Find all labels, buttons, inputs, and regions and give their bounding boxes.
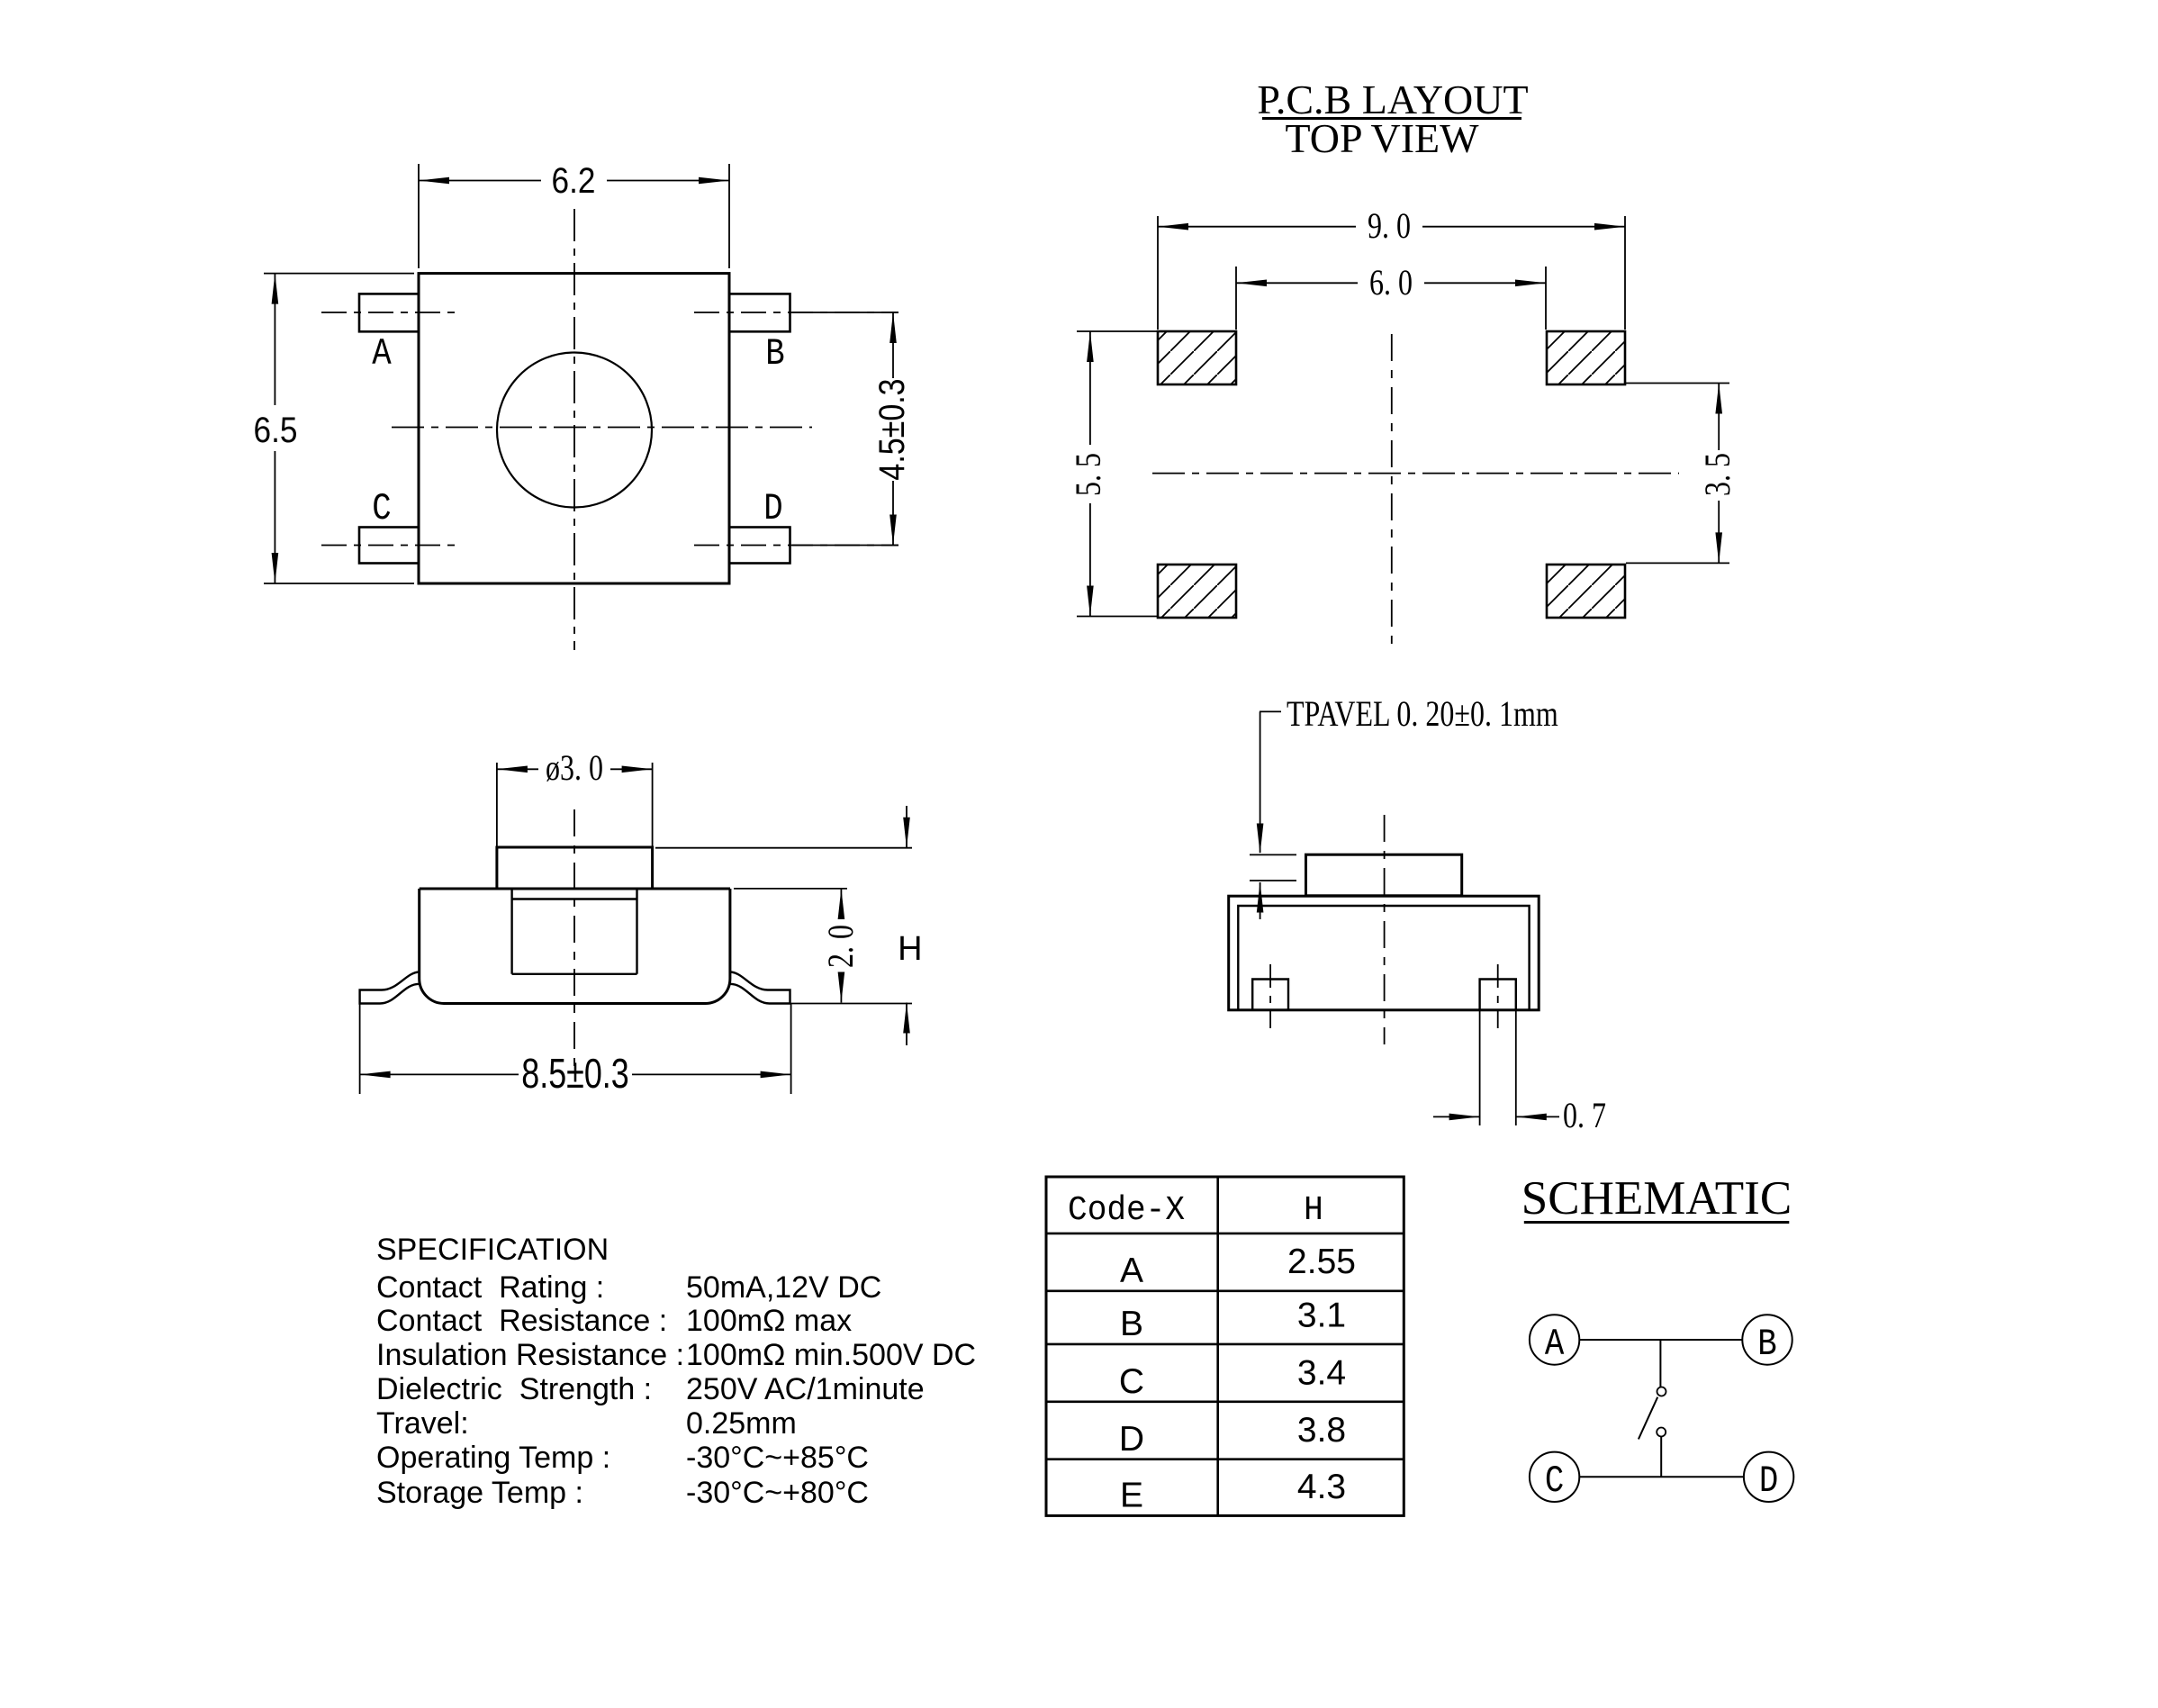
svg-text:ø3. 0: ø3. 0	[546, 748, 603, 788]
svg-text:2.55: 2.55	[1287, 1243, 1356, 1281]
svg-text:E: E	[1120, 1477, 1143, 1515]
svg-text:-30°C~+85°C: -30°C~+85°C	[686, 1441, 869, 1475]
svg-text:3. 5: 3. 5	[1698, 453, 1738, 496]
svg-text:3.1: 3.1	[1297, 1296, 1346, 1334]
svg-text:TPAVEL 0. 20±0. 1mm: TPAVEL 0. 20±0. 1mm	[1287, 694, 1558, 734]
svg-text:Travel:: Travel:	[376, 1406, 469, 1441]
svg-text:100mΩ max: 100mΩ max	[686, 1304, 852, 1338]
svg-text:D: D	[763, 488, 782, 530]
svg-text:A: A	[372, 333, 392, 375]
svg-text:8.5±0.3: 8.5±0.3	[521, 1051, 628, 1097]
svg-text:6. 0: 6. 0	[1369, 263, 1413, 303]
svg-text:A: A	[1545, 1324, 1565, 1366]
svg-text:B: B	[1757, 1324, 1776, 1366]
svg-text:50mA,12V DC: 50mA,12V DC	[686, 1270, 881, 1305]
svg-text:H: H	[898, 930, 922, 968]
svg-text:Insulation Resistance :: Insulation Resistance :	[376, 1338, 684, 1372]
svg-text:9. 0: 9. 0	[1368, 206, 1411, 246]
svg-text:D: D	[1119, 1420, 1144, 1459]
svg-text:H: H	[1304, 1191, 1323, 1230]
svg-text:3.4: 3.4	[1297, 1353, 1346, 1392]
svg-text:5. 5: 5. 5	[1069, 453, 1108, 496]
svg-text:100mΩ min.500V DC: 100mΩ min.500V DC	[686, 1338, 976, 1372]
svg-text:C: C	[1545, 1460, 1564, 1503]
svg-text:Contact Rating :: Contact Rating :	[376, 1270, 604, 1305]
svg-text:6.2: 6.2	[552, 160, 596, 201]
svg-text:Dielectric Strength :: Dielectric Strength :	[376, 1372, 652, 1406]
svg-text:B: B	[1120, 1305, 1143, 1343]
svg-text:0. 7: 0. 7	[1563, 1096, 1606, 1135]
svg-text:4.3: 4.3	[1297, 1468, 1346, 1506]
svg-text:6.5: 6.5	[254, 410, 298, 450]
svg-text:3.8: 3.8	[1297, 1411, 1346, 1450]
svg-text:Storage Temp :: Storage Temp :	[376, 1476, 583, 1510]
svg-text:Operating Temp :: Operating Temp :	[376, 1441, 610, 1475]
svg-text:Contact Resistance :: Contact Resistance :	[376, 1304, 667, 1338]
svg-text:SCHEMATIC: SCHEMATIC	[1521, 1172, 1792, 1225]
svg-text:Code-X: Code-X	[1068, 1191, 1185, 1230]
svg-text:A: A	[1120, 1252, 1143, 1290]
svg-text:4.5±0.3: 4.5±0.3	[871, 378, 911, 480]
svg-text:TOP VIEW: TOP VIEW	[1285, 115, 1479, 161]
svg-text:-30°C~+80°C: -30°C~+80°C	[686, 1476, 869, 1510]
svg-text:C: C	[372, 488, 391, 530]
svg-text:2. 0: 2. 0	[821, 925, 861, 968]
svg-text:SPECIFICATION: SPECIFICATION	[376, 1233, 609, 1267]
svg-text:B: B	[765, 333, 784, 375]
svg-text:250V AC/1minute: 250V AC/1minute	[686, 1372, 925, 1406]
svg-text:C: C	[1119, 1362, 1144, 1401]
svg-text:D: D	[1759, 1460, 1778, 1503]
svg-text:0.25mm: 0.25mm	[686, 1406, 797, 1441]
